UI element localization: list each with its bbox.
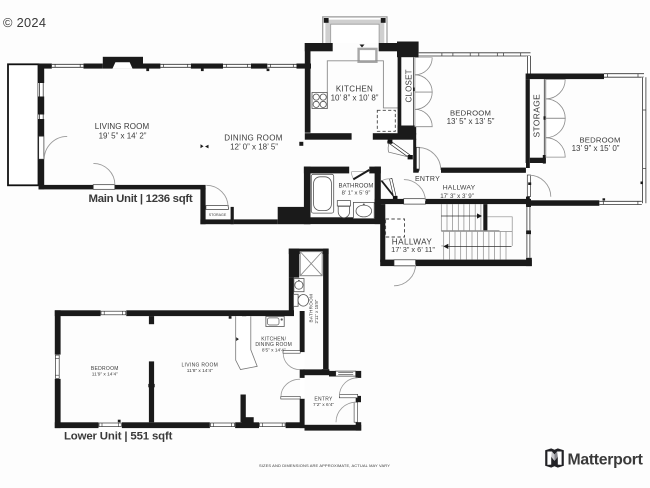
svg-text:Lower Unit | 551 sqft: Lower Unit | 551 sqft	[64, 430, 173, 442]
svg-text:DINING ROOM: DINING ROOM	[255, 342, 292, 348]
svg-text:HALLWAY: HALLWAY	[443, 185, 476, 192]
svg-text:LIVING ROOM: LIVING ROOM	[181, 362, 218, 368]
svg-text:STORAGE: STORAGE	[532, 94, 542, 138]
svg-text:Main Unit | 1236 sqft: Main Unit | 1236 sqft	[89, 193, 193, 205]
svg-text:17’ 3” x 6’ 11”: 17’ 3” x 6’ 11”	[391, 245, 435, 254]
svg-text:LIVING ROOM: LIVING ROOM	[95, 122, 150, 131]
svg-text:ENTRY: ENTRY	[415, 176, 440, 183]
svg-text:2’11” x 15’8”: 2’11” x 15’8”	[314, 299, 319, 323]
svg-text:17’ 3” x 3’ 9”: 17’ 3” x 3’ 9”	[440, 193, 474, 200]
svg-text:13’ 5” x 13’ 5”: 13’ 5” x 13’ 5”	[447, 117, 495, 126]
svg-text:STORAGE: STORAGE	[209, 213, 227, 217]
svg-text:8’ 1” x 5’ 9”: 8’ 1” x 5’ 9”	[342, 191, 371, 197]
svg-text:KITCHEN: KITCHEN	[336, 84, 373, 93]
svg-text:7’2” x 6’4”: 7’2” x 6’4”	[313, 402, 334, 408]
svg-text:CLOSET: CLOSET	[404, 69, 413, 102]
svg-text:13’ 9” x 15’ 0”: 13’ 9” x 15’ 0”	[572, 144, 620, 153]
svg-text:11’8” x 14’4”: 11’8” x 14’4”	[187, 368, 213, 374]
svg-text:11’9” x 14’4”: 11’9” x 14’4”	[92, 372, 118, 378]
svg-text:SIZES AND DIMENSIONS ARE APPRO: SIZES AND DIMENSIONS ARE APPROXIMATE, AC…	[259, 463, 390, 468]
svg-text:BEDROOM: BEDROOM	[91, 366, 119, 372]
svg-text:BATHROOM: BATHROOM	[338, 183, 373, 189]
svg-text:Matterport: Matterport	[568, 452, 644, 469]
svg-text:10’ 8” x 10’ 8”: 10’ 8” x 10’ 8”	[331, 94, 379, 103]
svg-text:12’ 0” x 18’ 5”: 12’ 0” x 18’ 5”	[230, 142, 278, 151]
svg-text:BEDROOM: BEDROOM	[579, 135, 620, 144]
svg-text:© 2024: © 2024	[3, 15, 46, 30]
svg-text:8’5” x 14’4”: 8’5” x 14’4”	[262, 348, 286, 354]
svg-text:19’ 5” x 14’ 2”: 19’ 5” x 14’ 2”	[99, 131, 147, 140]
svg-text:ENTRY: ENTRY	[314, 397, 333, 403]
svg-text:DINING ROOM: DINING ROOM	[224, 133, 282, 142]
